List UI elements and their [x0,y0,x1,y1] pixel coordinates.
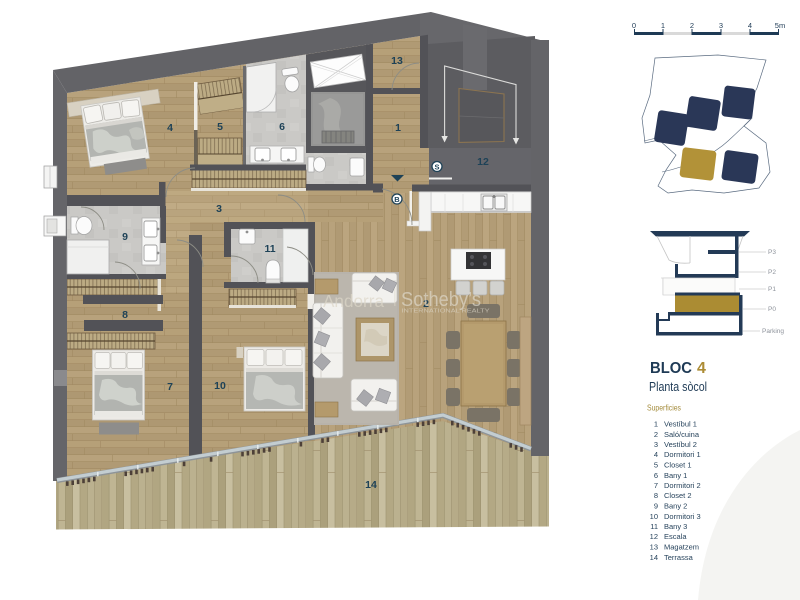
svg-text:11: 11 [650,522,658,531]
svg-text:9: 9 [654,502,658,511]
svg-text:12: 12 [650,532,658,541]
svg-text:5: 5 [217,121,223,133]
svg-text:BLOC: BLOC [650,360,692,377]
svg-text:Andorra: Andorra [323,291,384,311]
svg-text:13: 13 [650,543,658,552]
svg-text:6: 6 [279,121,285,133]
svg-text:5: 5 [654,461,658,470]
svg-text:7: 7 [654,481,658,490]
svg-text:Planta sòcol: Planta sòcol [649,379,707,394]
svg-text:10: 10 [214,380,226,392]
svg-text:3: 3 [216,203,222,215]
svg-text:P0: P0 [768,306,776,313]
svg-text:Vestíbul 1: Vestíbul 1 [664,420,697,429]
svg-text:Bany 1: Bany 1 [664,471,687,480]
svg-text:Closet 1: Closet 1 [664,461,692,470]
svg-text:Magatzem: Magatzem [664,543,699,552]
svg-text:4: 4 [697,360,706,377]
svg-text:3: 3 [654,440,658,449]
svg-text:1: 1 [395,122,401,134]
svg-text:Bany 2: Bany 2 [664,502,687,511]
svg-text:8: 8 [122,309,128,321]
svg-text:Dormitori 3: Dormitori 3 [664,512,701,521]
svg-text:Dormitori 2: Dormitori 2 [664,481,701,490]
svg-text:5m: 5m [775,21,785,30]
svg-text:Escala: Escala [664,532,687,541]
svg-text:3: 3 [719,21,723,30]
svg-text:4: 4 [748,21,752,30]
svg-text:Superficies: Superficies [647,404,681,413]
svg-text:P2: P2 [768,269,776,276]
svg-text:14: 14 [650,553,658,562]
svg-text:Bany 3: Bany 3 [664,522,687,531]
svg-text:4: 4 [167,122,173,134]
svg-text:B: B [394,195,400,204]
svg-text:Closet 2: Closet 2 [664,491,692,500]
svg-text:2: 2 [690,21,694,30]
svg-text:14: 14 [365,479,377,491]
svg-text:13: 13 [391,55,403,67]
svg-text:P3: P3 [768,249,776,256]
svg-text:Saló/cuina: Saló/cuina [664,430,700,439]
svg-text:S: S [434,162,439,171]
svg-text:INTERNATIONAL REALTY: INTERNATIONAL REALTY [402,309,491,315]
svg-text:10: 10 [650,512,658,521]
svg-text:0: 0 [632,21,636,30]
svg-text:2: 2 [654,430,658,439]
svg-text:1: 1 [661,21,665,30]
svg-text:Terrassa: Terrassa [664,553,694,562]
svg-text:6: 6 [654,471,658,480]
svg-text:P1: P1 [768,286,776,293]
svg-text:4: 4 [654,450,658,459]
svg-text:12: 12 [477,156,489,168]
svg-text:11: 11 [264,243,275,255]
svg-text:Parking: Parking [762,328,784,335]
svg-text:9: 9 [122,231,128,243]
svg-text:Dormitori 1: Dormitori 1 [664,450,701,459]
svg-text:7: 7 [167,381,173,393]
svg-text:8: 8 [654,491,658,500]
svg-text:1: 1 [654,420,658,429]
svg-text:Vestíbul 2: Vestíbul 2 [664,440,697,449]
